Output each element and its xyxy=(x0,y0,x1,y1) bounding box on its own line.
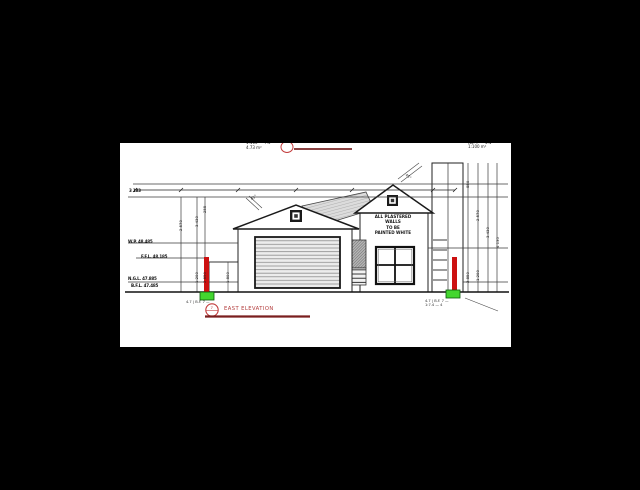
gable-note-line4: PAINTED WHITE xyxy=(365,230,421,236)
dim-left-6: 1 800 xyxy=(225,272,230,283)
dim-right-1: 850 xyxy=(465,181,470,188)
right-base-marker xyxy=(446,290,460,298)
drawing-sheet: 1:100 — 7.4 4.73 m² No. 7 — 4.1 1:100 m²… xyxy=(120,143,511,347)
dim-left-3: 255 xyxy=(202,206,207,213)
dim-right-3: 3 430 xyxy=(485,227,490,238)
right-marker-leader xyxy=(465,298,498,311)
marker-note-left: 4.7 | B.F. 7 — xyxy=(186,300,210,304)
chimney xyxy=(432,163,463,292)
top-right-note-line2: 1:100 m² xyxy=(468,145,491,150)
right-gable-vent-icon xyxy=(387,195,398,206)
dim-left-2: 3 430 xyxy=(194,216,199,227)
top-dimension-line xyxy=(133,188,457,192)
dim-left-4: 2 850 xyxy=(202,272,207,283)
window xyxy=(376,247,414,284)
garage-door xyxy=(255,237,340,288)
dim-left-5: 1 200 xyxy=(194,272,199,283)
right-column-marker xyxy=(452,257,457,292)
left-gable-vent-icon xyxy=(290,210,302,222)
top-reference-bubble-icon xyxy=(281,143,352,153)
top-left-note-line2: 4.73 m² xyxy=(246,146,270,151)
level-label-ffl: F.F.L. 48.185 xyxy=(141,254,167,259)
low-boundary-wall xyxy=(209,262,238,292)
level-label-bfl: B.F.L. 47.485 xyxy=(131,283,158,288)
dim-right-2: 2 570 xyxy=(475,210,480,221)
marker-note-right-line2: 1:7.4 — 4 xyxy=(425,303,449,307)
top-right-note: No. 7 — 4.1 1:100 m² xyxy=(468,143,491,150)
image-canvas: 1:100 — 7.4 4.73 m² No. 7 — 4.1 1:100 m²… xyxy=(0,0,640,490)
dim-right-4: 4 130 xyxy=(495,237,500,248)
level-label-ridge: 3 183 xyxy=(129,188,141,193)
dim-right-6: 1 200 xyxy=(475,270,480,281)
level-label-ngl: N.G.L. 47.885 xyxy=(128,276,157,281)
top-left-note: 1:100 — 7.4 4.73 m² xyxy=(246,143,270,151)
marker-note-right: 4.7 | B.F. 7 — 1:7.4 — 4 xyxy=(425,299,449,307)
title-bubble-label: 7 xyxy=(211,305,213,310)
page-title: EAST ELEVATION xyxy=(224,306,274,312)
level-label-wallplate: W.P. 48.485 xyxy=(128,239,153,244)
dim-left-1: 2 570 xyxy=(178,220,183,231)
elevation-linework xyxy=(120,143,511,347)
dim-right-5: 2 850 xyxy=(465,272,470,283)
gable-note: ALL PLASTERED WALLS TO BE PAINTED WHITE xyxy=(365,214,421,236)
